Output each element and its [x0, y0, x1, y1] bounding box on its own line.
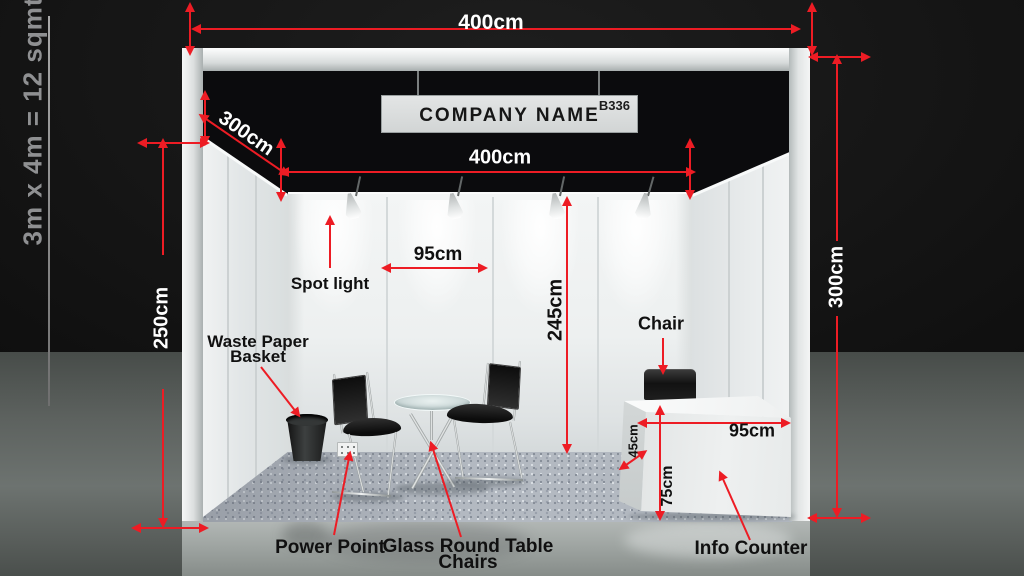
dim-end-marker	[811, 11, 813, 47]
dim-end-marker	[204, 99, 206, 137]
dim-line-left-height	[162, 147, 164, 255]
glass-table-label: Glass Round Table Chairs	[383, 539, 554, 571]
waste-basket-label-line2: Basket	[207, 349, 308, 364]
chair-label: Chair	[638, 314, 684, 335]
dim-spot-spacing: 95cm	[414, 244, 463, 266]
dimension-layer: 400cm 300cm 400cm 250cm 95cm 245cm 300cm…	[0, 0, 1024, 576]
waste-basket-arrow	[260, 366, 295, 411]
dim-counter-width: 95cm	[729, 421, 775, 442]
dim-line-right-height	[836, 63, 838, 241]
power-point-arrow	[333, 459, 350, 535]
dim-left-height: 250cm	[151, 287, 174, 349]
dim-right-height: 300cm	[826, 246, 849, 308]
booth-render: 3m x 4m = 12 sqmt COMPANY NAME B336	[0, 0, 1024, 576]
dim-line-inner-width	[288, 171, 687, 173]
glass-table-arrow	[432, 449, 462, 537]
dim-cap	[140, 527, 200, 529]
dim-line-spot-spacing	[390, 267, 479, 269]
dim-line-right-height	[836, 316, 838, 509]
dim-cap	[816, 517, 862, 519]
dim-top-width: 400cm	[458, 11, 523, 35]
dim-inner-width: 400cm	[469, 147, 531, 170]
power-point-label: Power Point	[275, 537, 385, 559]
dim-end-marker	[189, 11, 191, 47]
dim-counter-height: 75cm	[659, 466, 677, 507]
dim-end-marker	[689, 147, 691, 191]
waste-basket-label: Waste Paper Basket	[207, 334, 308, 364]
spot-light-arrow	[329, 224, 331, 268]
glass-table-label-line2: Chairs	[383, 555, 554, 571]
dim-counter-depth: 45cm	[626, 424, 641, 457]
info-counter-label: Info Counter	[695, 538, 808, 560]
spot-light-label: Spot light	[291, 274, 369, 294]
dim-line-left-height	[162, 389, 164, 519]
info-counter-arrow	[722, 478, 751, 540]
dim-left-depth: 300cm	[214, 107, 278, 161]
dim-cap	[146, 142, 201, 144]
chair-arrow	[662, 338, 664, 366]
dim-wall-height: 245cm	[545, 279, 568, 341]
